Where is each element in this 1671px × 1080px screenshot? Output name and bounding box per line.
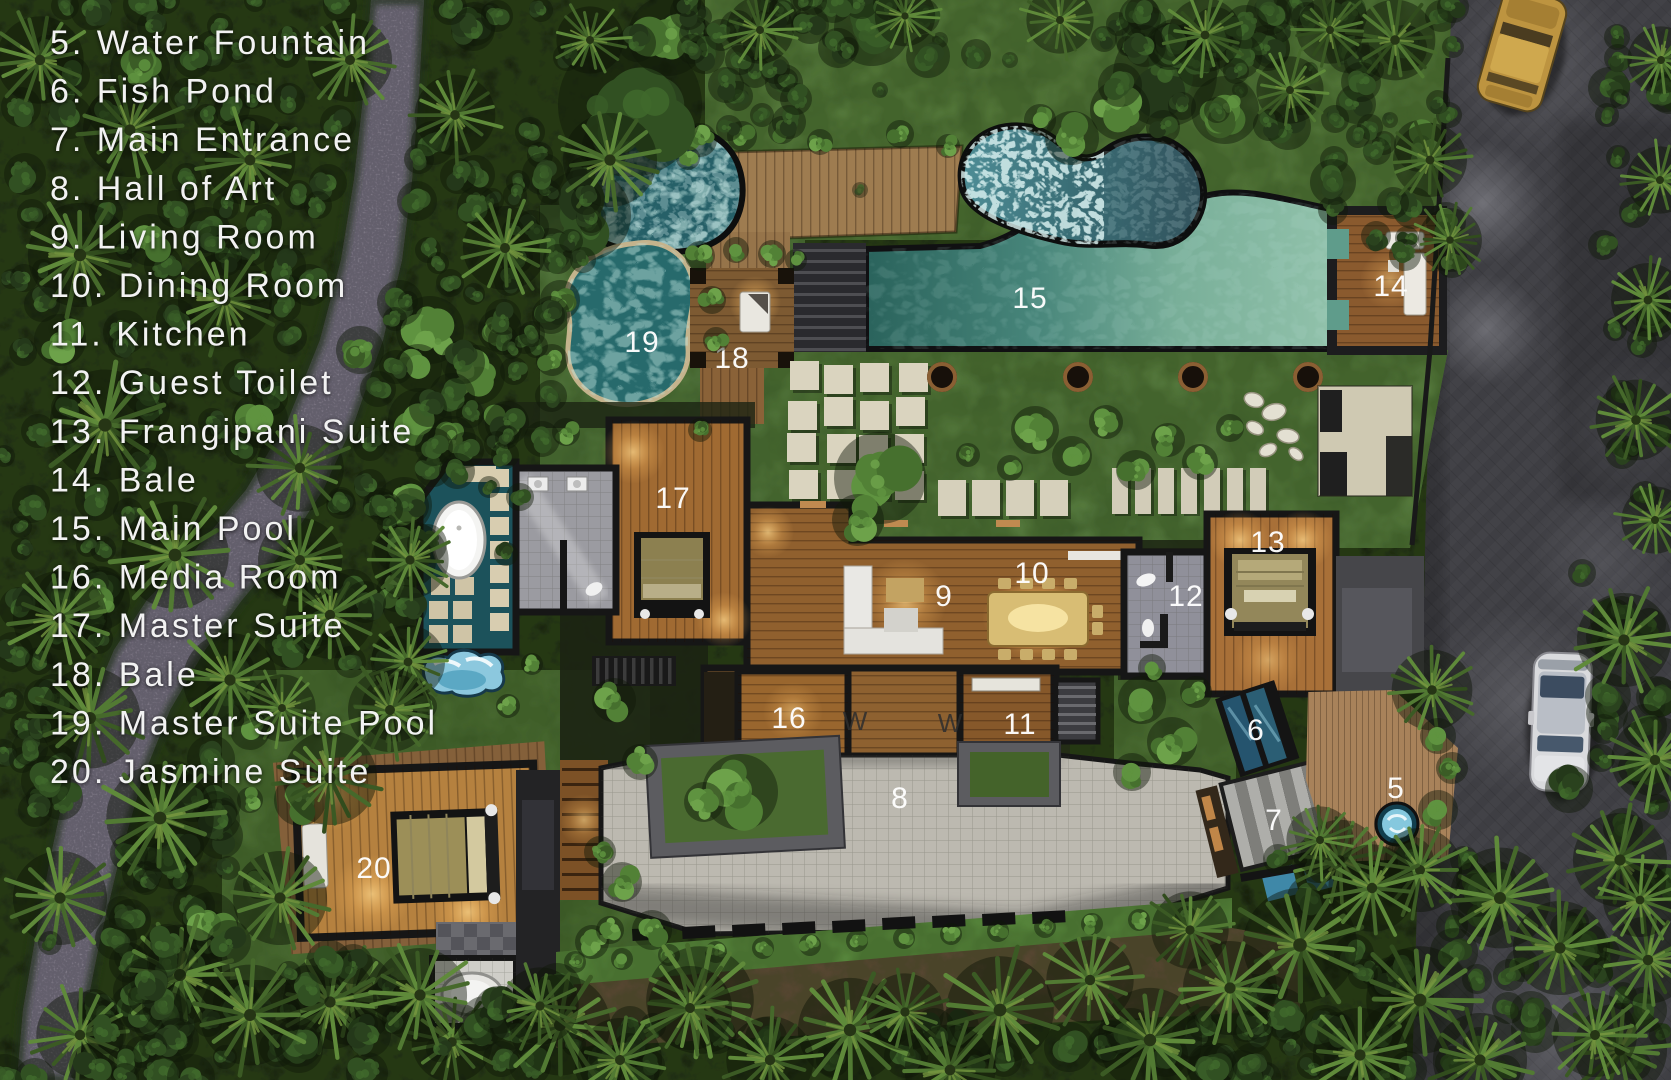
svg-text:19. Master Suite Pool: 19. Master Suite Pool: [50, 704, 438, 742]
svg-text:15: 15: [1012, 282, 1047, 315]
svg-text:16: 16: [771, 702, 806, 735]
svg-text:5. Water Fountain: 5. Water Fountain: [50, 24, 370, 62]
svg-text:17. Master Suite: 17. Master Suite: [50, 607, 346, 645]
svg-text:14. Bale: 14. Bale: [50, 461, 199, 499]
svg-text:7: 7: [1265, 804, 1283, 837]
svg-text:10: 10: [1014, 557, 1049, 590]
svg-text:6: 6: [1247, 714, 1265, 747]
svg-text:5: 5: [1387, 772, 1405, 805]
svg-text:12. Guest Toilet: 12. Guest Toilet: [50, 364, 334, 402]
svg-text:11: 11: [1003, 708, 1036, 741]
svg-text:13: 13: [1250, 526, 1285, 559]
svg-text:12: 12: [1168, 580, 1203, 613]
svg-text:11. Kitchen: 11. Kitchen: [50, 316, 251, 354]
svg-text:W: W: [843, 706, 868, 736]
svg-text:20: 20: [356, 852, 391, 885]
svg-text:13. Frangipani Suite: 13. Frangipani Suite: [50, 413, 414, 451]
svg-text:16. Media Room: 16. Media Room: [50, 559, 341, 597]
svg-text:20. Jasmine Suite: 20. Jasmine Suite: [50, 753, 371, 791]
svg-text:W: W: [938, 708, 963, 738]
svg-text:9. Living Room: 9. Living Room: [50, 218, 319, 256]
svg-text:14: 14: [1373, 270, 1408, 303]
svg-text:19: 19: [624, 326, 659, 359]
svg-text:7. Main Entrance: 7. Main Entrance: [50, 121, 355, 159]
svg-text:8: 8: [891, 782, 909, 815]
svg-text:8. Hall of Art: 8. Hall of Art: [50, 170, 277, 208]
svg-text:15. Main Pool: 15. Main Pool: [50, 510, 297, 548]
svg-text:6. Fish Pond: 6. Fish Pond: [50, 73, 277, 111]
svg-text:9: 9: [935, 580, 953, 613]
svg-text:10. Dining Room: 10. Dining Room: [50, 267, 348, 305]
svg-text:17: 17: [655, 482, 690, 515]
svg-text:18. Bale: 18. Bale: [50, 656, 199, 694]
